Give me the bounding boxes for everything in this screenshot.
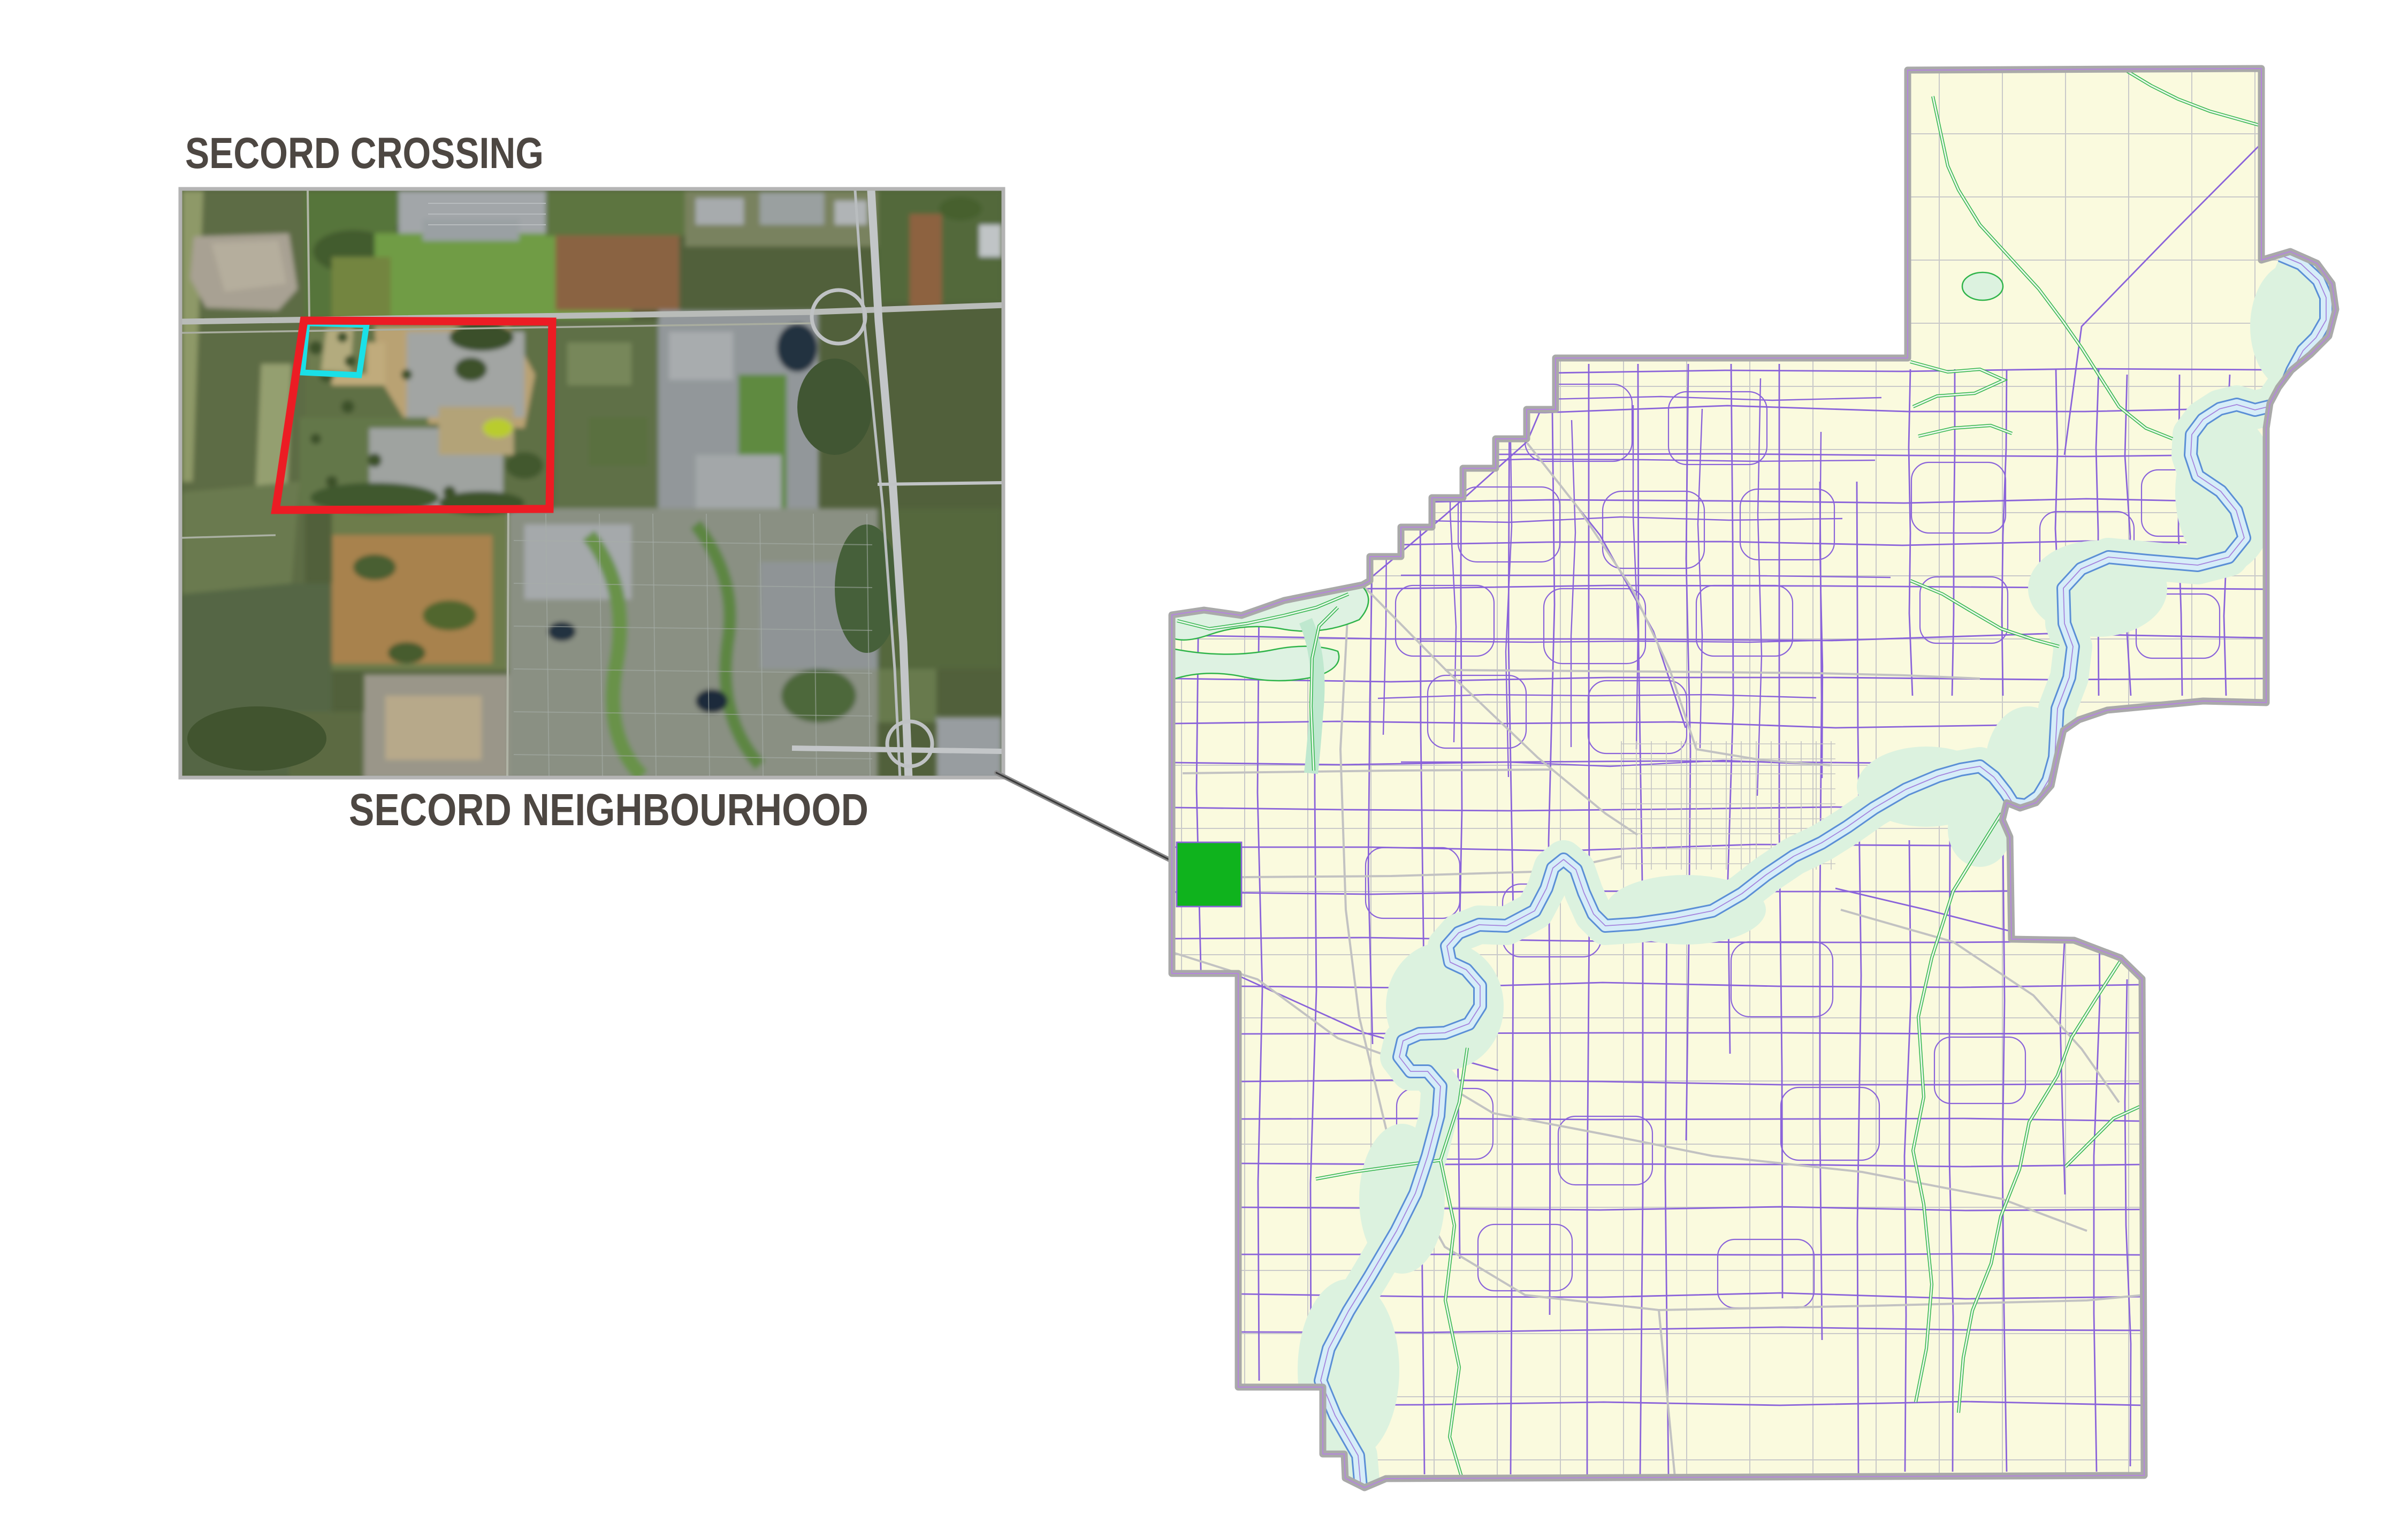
svg-text:SECORD NEIGHBOURHOOD: SECORD NEIGHBOURHOOD: [349, 785, 868, 835]
svg-text:SECORD CROSSING: SECORD CROSSING: [185, 129, 544, 178]
